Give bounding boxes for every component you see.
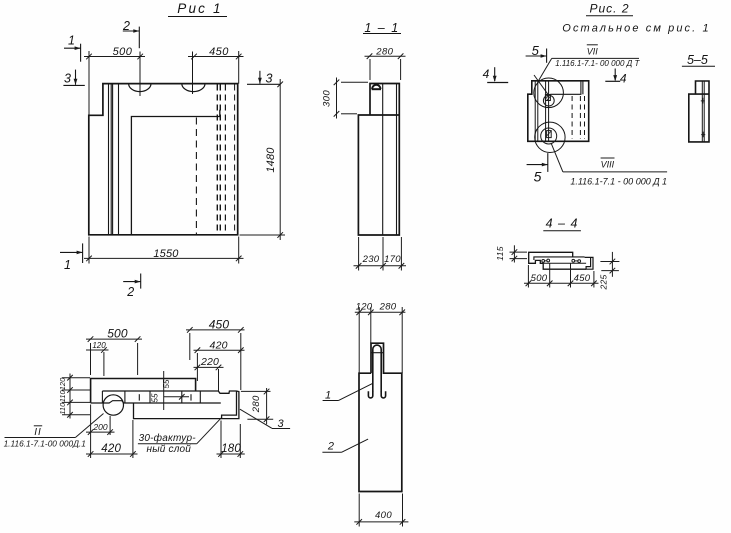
- svg-text:5: 5: [534, 169, 542, 185]
- svg-text:115: 115: [495, 246, 505, 260]
- svg-text:2: 2: [327, 441, 334, 453]
- svg-text:450: 450: [209, 46, 229, 58]
- svg-text:4: 4: [620, 72, 627, 86]
- svg-text:230: 230: [362, 254, 380, 265]
- svg-text:1: 1: [64, 258, 71, 272]
- svg-text:1480: 1480: [265, 147, 277, 173]
- svg-text:30-фактур-: 30-фактур-: [139, 432, 197, 444]
- svg-text:280: 280: [379, 302, 397, 313]
- svg-text:300: 300: [322, 90, 333, 107]
- svg-text:1: 1: [68, 34, 75, 48]
- svg-text:4: 4: [483, 67, 490, 81]
- svg-text:170: 170: [384, 254, 401, 265]
- svg-text:3: 3: [64, 72, 71, 86]
- svg-text:5–5: 5–5: [687, 53, 708, 67]
- svg-text:4 – 4: 4 – 4: [546, 217, 579, 231]
- svg-text:400: 400: [375, 510, 392, 521]
- svg-text:ный слой: ный слой: [147, 444, 192, 455]
- svg-text:500: 500: [113, 46, 133, 58]
- svg-text:450: 450: [209, 318, 230, 332]
- svg-text:220: 220: [200, 356, 219, 368]
- svg-text:1.116.1-7.1 - 00 000 Д 1: 1.116.1-7.1 - 00 000 Д 1: [570, 177, 667, 187]
- svg-text:3: 3: [266, 72, 273, 86]
- svg-text:Рис. 2: Рис. 2: [589, 2, 629, 16]
- svg-text:120: 120: [58, 377, 67, 390]
- svg-text:VIII: VIII: [601, 160, 615, 170]
- svg-text:1.116.1-7.1-00 000Д.1: 1.116.1-7.1-00 000Д.1: [4, 438, 86, 448]
- svg-text:120: 120: [356, 302, 373, 313]
- svg-text:Рис 1: Рис 1: [177, 1, 223, 16]
- svg-text:420: 420: [101, 443, 121, 455]
- svg-text:110: 110: [58, 402, 67, 415]
- svg-text:225: 225: [599, 274, 609, 290]
- svg-text:200: 200: [92, 422, 107, 432]
- svg-text:280: 280: [251, 395, 262, 413]
- svg-text:55: 55: [150, 393, 159, 402]
- svg-text:500: 500: [531, 273, 548, 284]
- svg-text:1 – 1: 1 – 1: [364, 21, 399, 35]
- svg-text:1: 1: [325, 390, 331, 402]
- svg-text:1.116.1-7.1- 00 000 Д Т: 1.116.1-7.1- 00 000 Д Т: [555, 59, 640, 68]
- svg-text:VII: VII: [587, 47, 599, 57]
- svg-text:110: 110: [58, 389, 67, 402]
- svg-text:2: 2: [126, 285, 134, 299]
- svg-text:180: 180: [221, 443, 241, 455]
- svg-text:II: II: [34, 427, 42, 438]
- svg-text:500: 500: [107, 327, 128, 341]
- svg-text:450: 450: [574, 273, 591, 284]
- svg-text:1550: 1550: [153, 248, 179, 260]
- svg-text:420: 420: [210, 340, 228, 352]
- svg-text:55: 55: [162, 379, 171, 388]
- svg-text:280: 280: [375, 47, 393, 58]
- svg-text:Остальное см рис. 1: Остальное см рис. 1: [562, 23, 710, 35]
- svg-text:120: 120: [92, 341, 106, 350]
